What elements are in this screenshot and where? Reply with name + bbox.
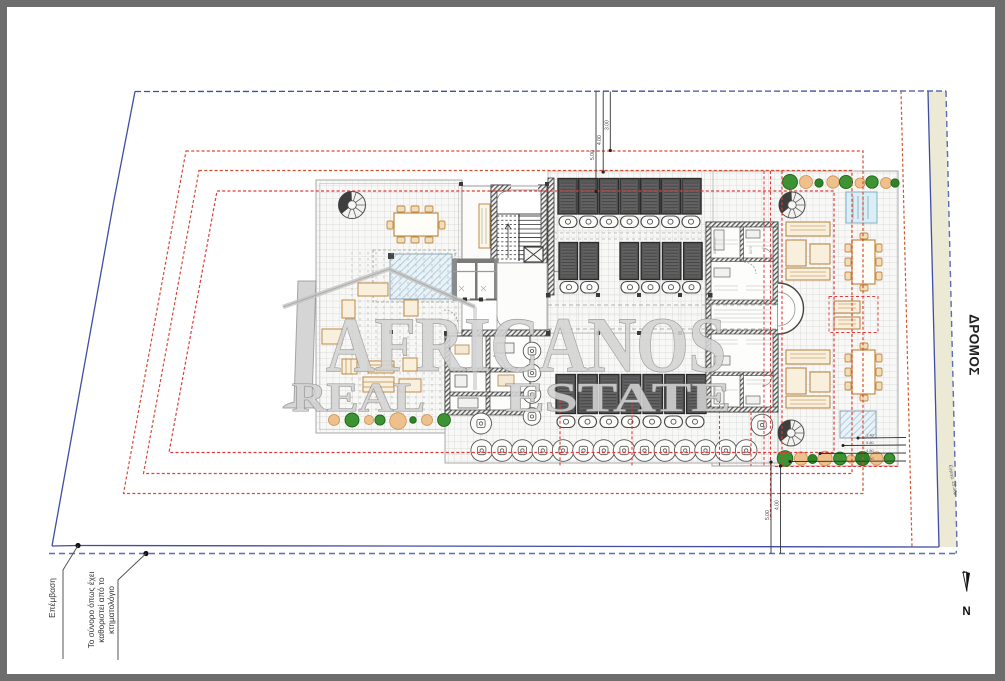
svg-text:BEDROOM: BEDROOM [713, 237, 717, 254]
svg-text:ESTATE: ESTATE [505, 374, 731, 420]
svg-text:ΔΡΟΜΟΣ: ΔΡΟΜΟΣ [967, 314, 982, 375]
svg-text:N: N [962, 606, 970, 618]
svg-text:5.00: 5.00 [765, 510, 771, 520]
svg-text:κτηματολόγιο: κτηματολόγιο [107, 586, 116, 634]
svg-text:4.80: 4.80 [866, 448, 875, 453]
svg-text:Επέμβαση: Επέμβαση [47, 578, 57, 618]
svg-text:3.00: 3.00 [604, 120, 610, 130]
svg-text:BATH: BATH [749, 245, 753, 254]
svg-text:4.00: 4.00 [775, 500, 781, 510]
svg-text:1.40: 1.40 [866, 433, 875, 438]
svg-text:Το σύνορο όπως έχει: Το σύνορο όπως έχει [87, 572, 96, 649]
svg-text:καθοριστεί από το: καθοριστεί από το [97, 577, 106, 643]
svg-text:4.00: 4.00 [597, 135, 603, 145]
svg-text:REAL: REAL [292, 374, 425, 420]
svg-text:5.80: 5.80 [866, 440, 875, 445]
svg-text:1.80: 1.80 [866, 456, 875, 461]
svg-text:5.00: 5.00 [590, 150, 596, 160]
